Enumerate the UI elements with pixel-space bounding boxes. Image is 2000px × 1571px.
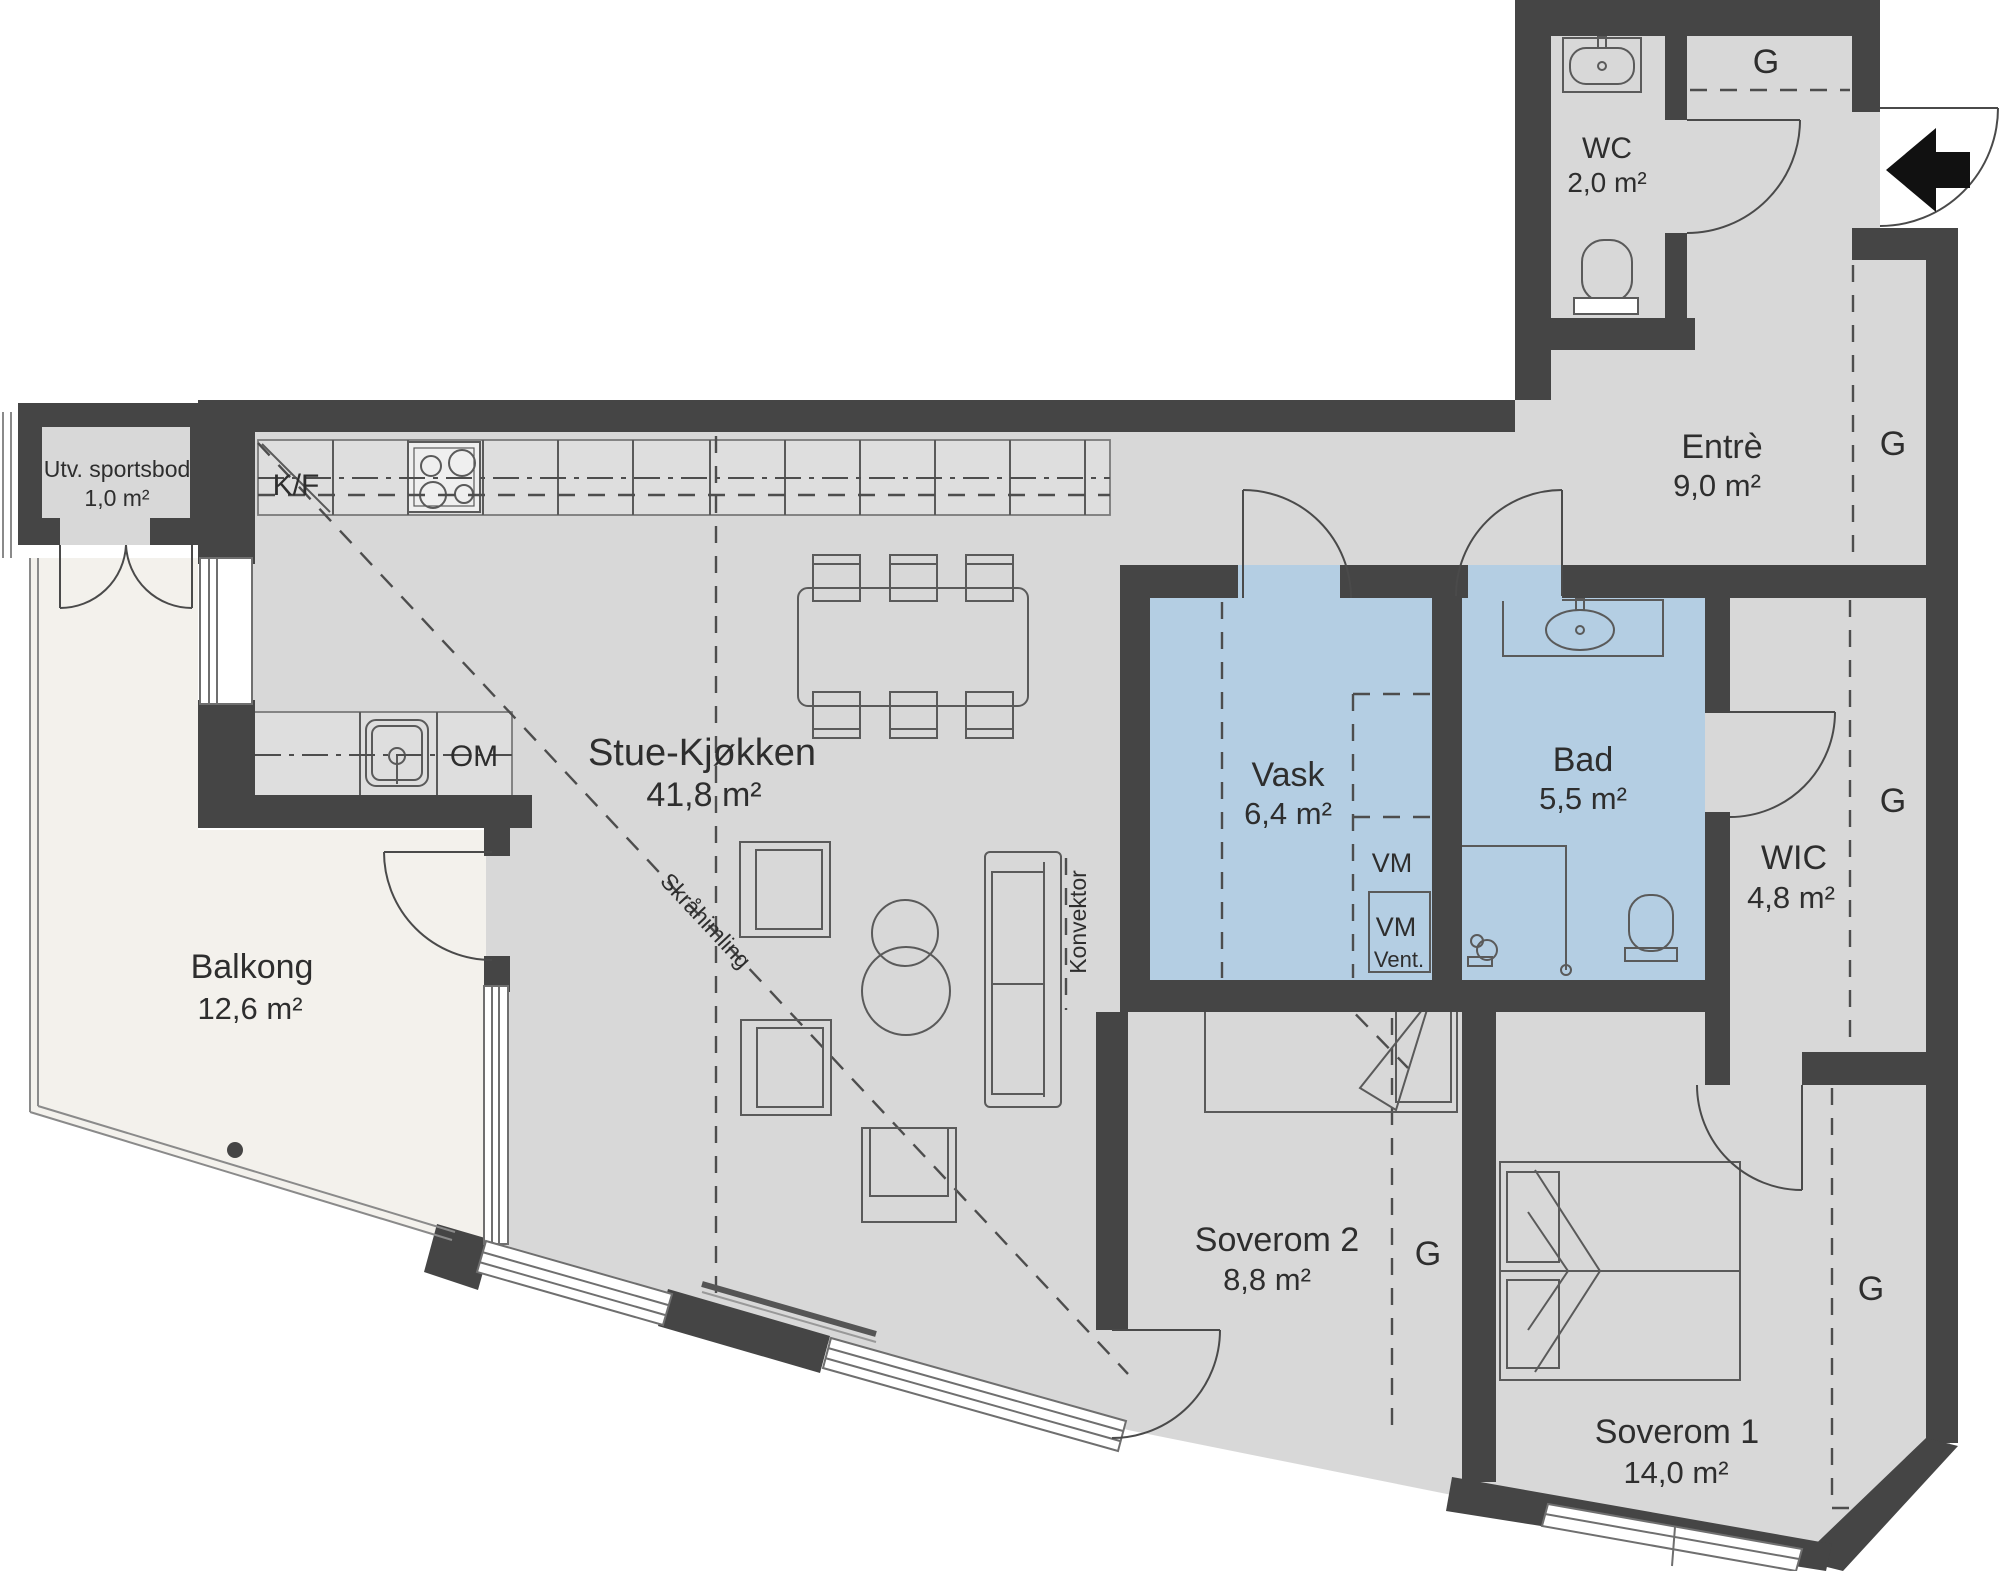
room-label-wc: WC (1582, 132, 1632, 165)
room-label-wic: WIC (1761, 839, 1827, 877)
balcony-door-threshold (484, 856, 510, 958)
room-area-soverom2: 8,8 m² (1223, 1262, 1311, 1297)
om-label: OM (450, 740, 498, 773)
konvektor-label: Konvektor (1065, 870, 1091, 974)
room-area-balkong: 12,6 m² (197, 991, 302, 1026)
g-label-soverom1: G (1858, 1270, 1884, 1308)
room-label-vask: Vask (1251, 756, 1325, 794)
room-label-stue: Stue-Kjøkken (588, 732, 816, 774)
vent-label: Vent. (1374, 947, 1424, 972)
room-label-soverom2: Soverom 2 (1195, 1221, 1359, 1259)
room-area-wic: 4,8 m² (1747, 880, 1835, 915)
kf-label: K/F (273, 469, 320, 502)
vm-label-2: VM (1376, 912, 1417, 942)
room-area-vask: 6,4 m² (1244, 796, 1332, 831)
g-label-hall: G (1753, 43, 1779, 81)
room-area-entre: 9,0 m² (1673, 468, 1761, 503)
floor-plan: Utv. sportsbod 1,0 m² WC 2,0 m² Entrè 9,… (0, 0, 2000, 1571)
room-label-soverom1: Soverom 1 (1595, 1413, 1759, 1451)
room-area-bad: 5,5 m² (1539, 781, 1627, 816)
room-area-soverom1: 14,0 m² (1623, 1455, 1728, 1490)
room-area-sportsbod: 1,0 m² (84, 485, 150, 511)
entrance-arrow-icon (1886, 128, 1970, 212)
entrance-threshold (1852, 112, 1880, 230)
room-label-bad: Bad (1553, 741, 1614, 779)
balcony-drain (227, 1142, 243, 1158)
room-label-balkong: Balkong (191, 948, 314, 986)
g-label-entre: G (1880, 425, 1906, 463)
room-label-entre: Entrè (1681, 428, 1762, 466)
room-area-stue: 41,8 m² (646, 776, 761, 814)
floor-plan-canvas: Utv. sportsbod 1,0 m² WC 2,0 m² Entrè 9,… (0, 0, 2000, 1571)
g-label-soverom2: G (1415, 1235, 1441, 1273)
kitchen-window (200, 558, 252, 704)
room-area-wc: 2,0 m² (1567, 167, 1646, 198)
room-label-sportsbod: Utv. sportsbod (44, 456, 191, 482)
balcony-window (484, 986, 508, 1244)
g-label-wic: G (1880, 782, 1906, 820)
vm-label-1: VM (1372, 848, 1413, 878)
